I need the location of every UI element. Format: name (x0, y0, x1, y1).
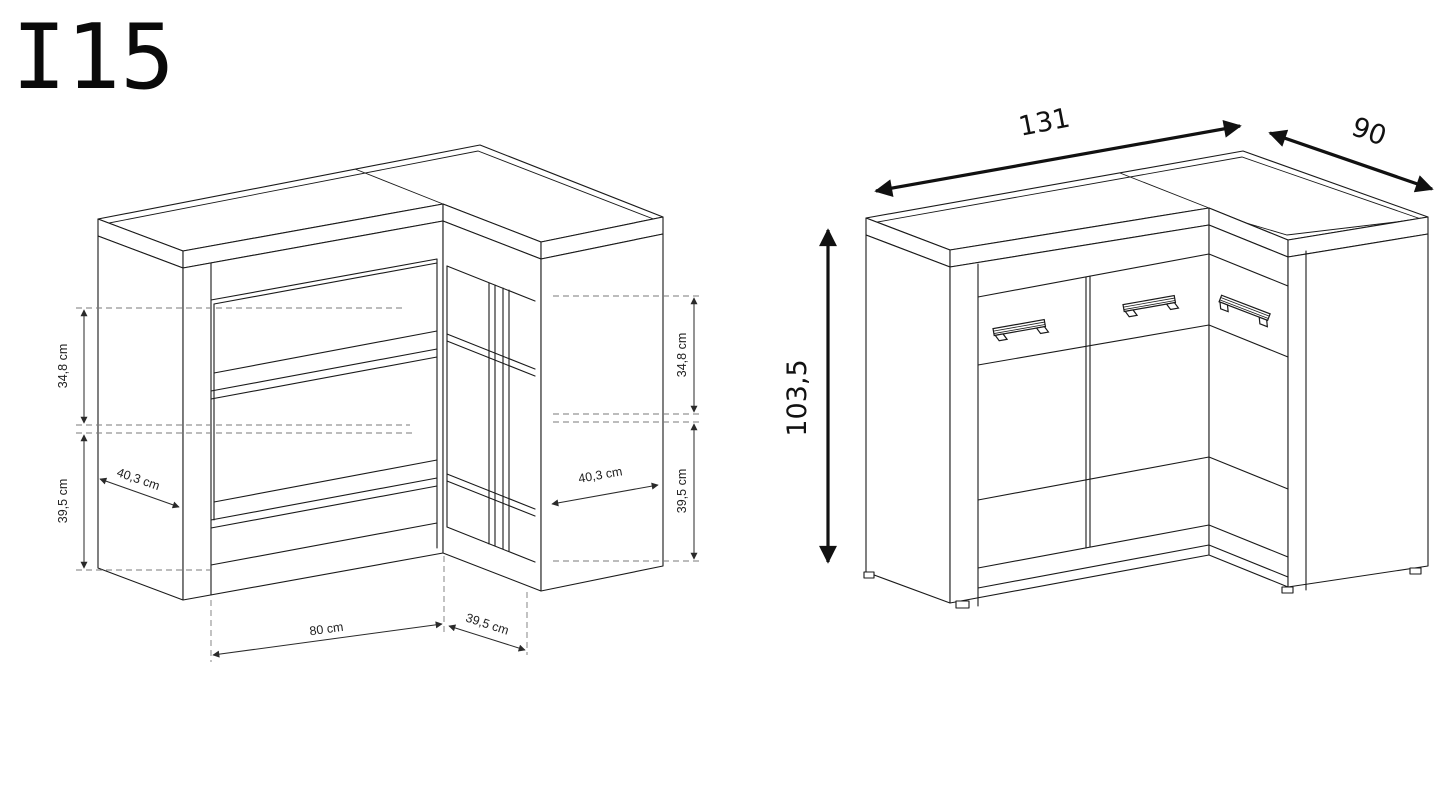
wing-side-panel (1288, 234, 1428, 587)
dim-overall-width: 131 (1016, 103, 1073, 143)
product-code-title: I15 (12, 5, 175, 110)
dim-bottom-wing-depth: 39,5 cm (464, 611, 511, 638)
technical-drawing-canvas: I15 (0, 0, 1448, 809)
left-side-panel (98, 236, 183, 600)
wing-front-open-face (443, 221, 541, 591)
interior-view-drawing: 34,8 cm 39,5 cm 40,3 cm 34,8 cm 39,5 cm … (56, 145, 702, 662)
dim-left-upper-height: 34,8 cm (56, 344, 70, 388)
dim-right-lower-height: 39,5 cm (675, 469, 689, 513)
main-front-open-face (183, 221, 443, 600)
dim-right-upper-height: 34,8 cm (675, 333, 689, 377)
left-side-panel (866, 235, 950, 603)
technical-drawing-page: I15 (0, 0, 1448, 809)
main-front-doors-face (950, 225, 1209, 603)
wing-front-door-face (1209, 225, 1288, 587)
exterior-view-drawing: 131 90 103,5 (782, 103, 1432, 608)
dim-overall-depth: 90 (1347, 112, 1390, 153)
dim-bottom-width: 80 cm (309, 620, 345, 639)
dim-overall-height: 103,5 (782, 359, 813, 436)
dim-left-lower-height: 39,5 cm (56, 479, 70, 523)
wing-side-panel (541, 234, 663, 591)
